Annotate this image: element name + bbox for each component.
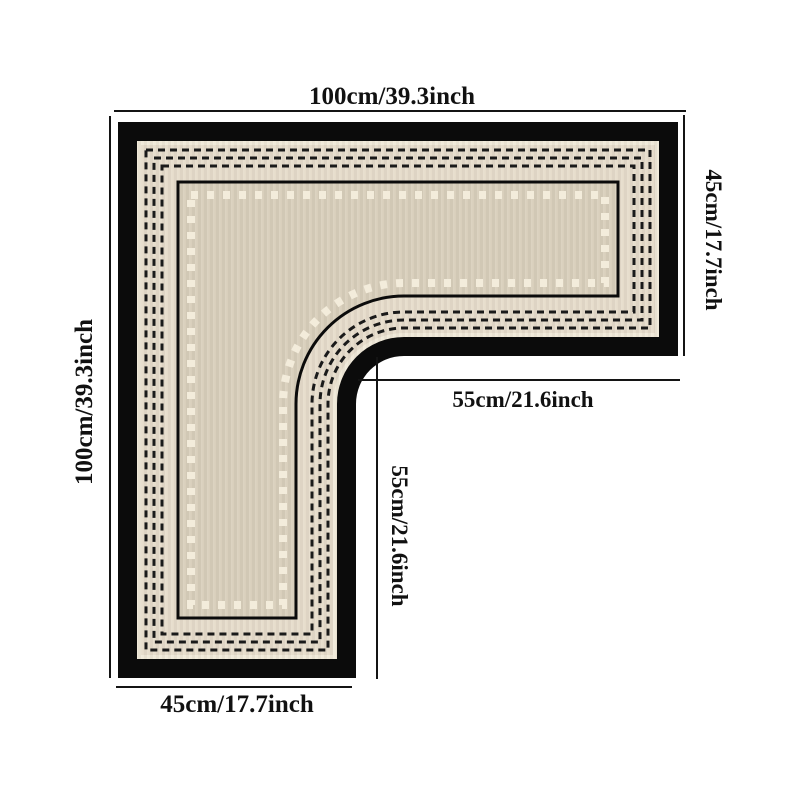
diagram-svg: 100cm/39.3inch 100cm/39.3inch 45cm/17.7i… [0, 0, 800, 800]
dim-label-inner-width: 55cm/21.6inch [452, 387, 593, 412]
rug-dimension-diagram: 100cm/39.3inch 100cm/39.3inch 45cm/17.7i… [0, 0, 800, 800]
dim-label-inner-height: 55cm/21.6inch [387, 465, 412, 606]
dim-label-right-arm-height: 45cm/17.7inch [701, 169, 726, 310]
dim-label-left-height: 100cm/39.3inch [71, 319, 98, 485]
dim-label-top-width: 100cm/39.3inch [309, 83, 475, 110]
dim-label-bottom-leg-width: 45cm/17.7inch [160, 691, 314, 718]
